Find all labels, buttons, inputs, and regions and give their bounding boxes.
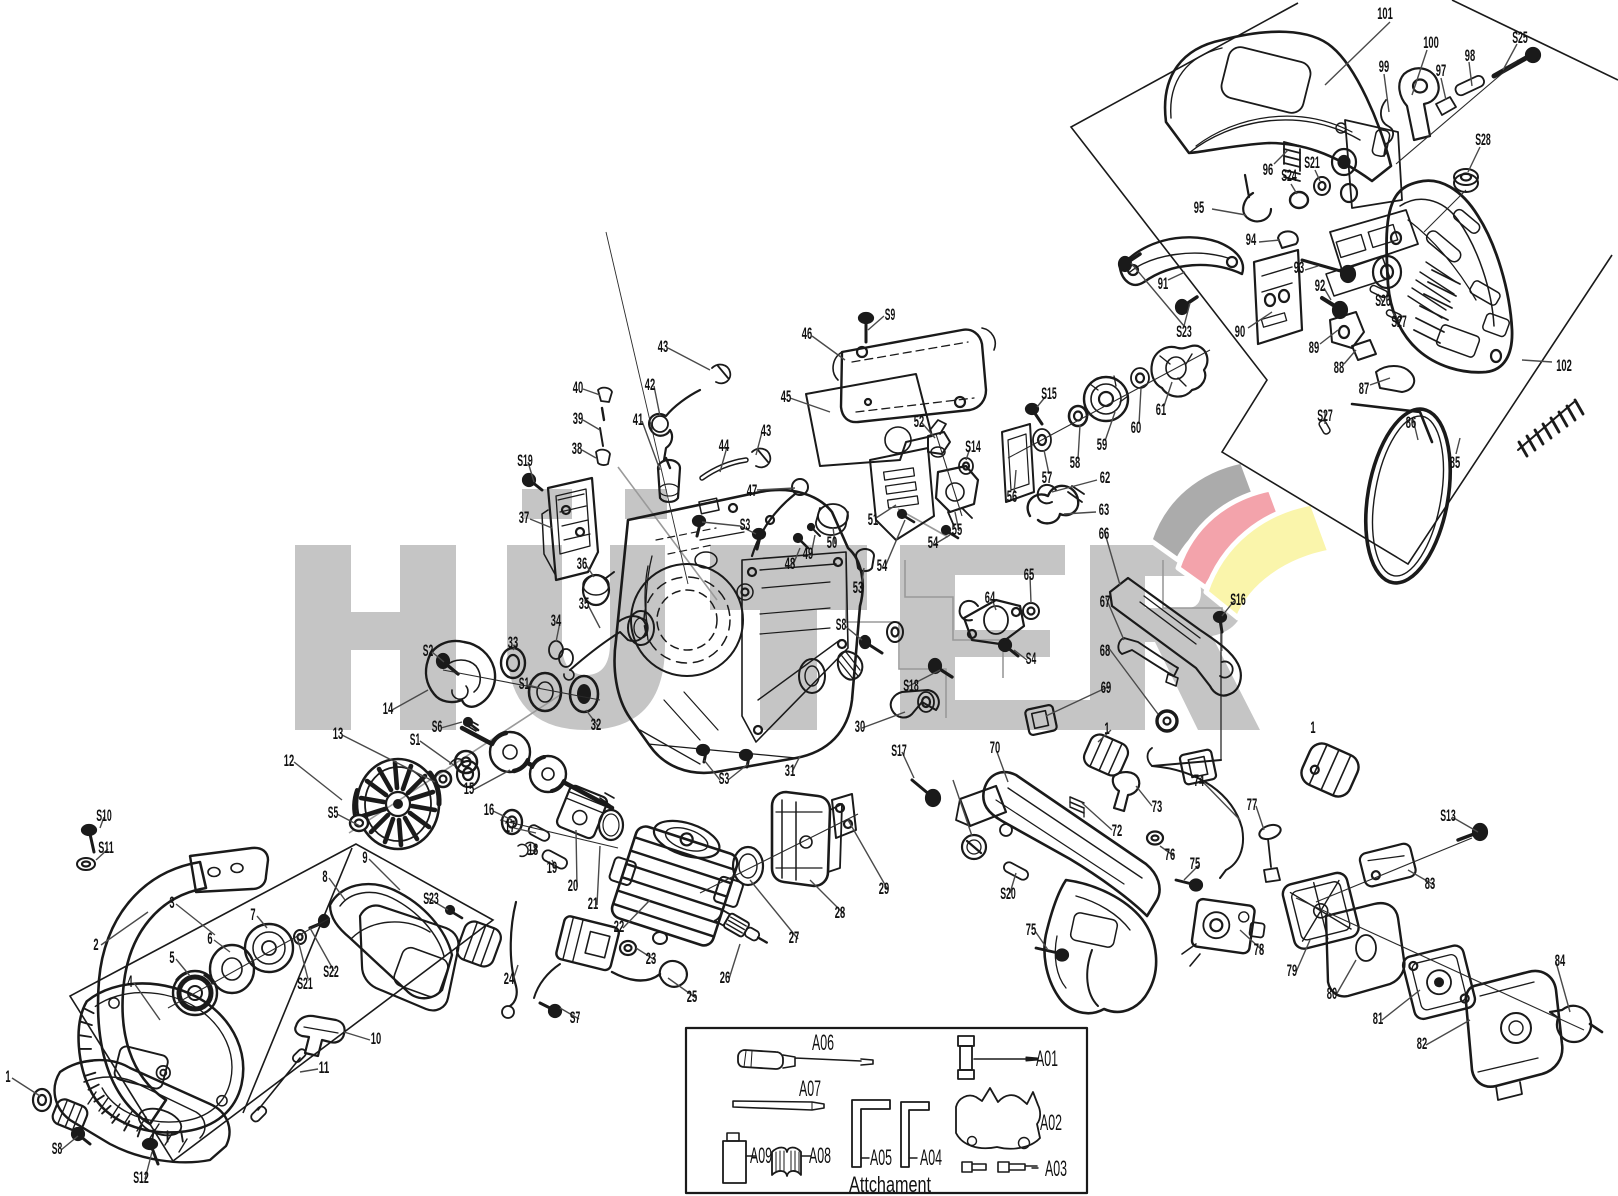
svg-text:S25: S25 (1512, 28, 1528, 47)
svg-text:S11: S11 (98, 838, 114, 857)
svg-text:A02: A02 (1040, 1110, 1062, 1135)
svg-text:89: 89 (1309, 338, 1319, 357)
svg-text:3: 3 (169, 893, 174, 912)
svg-text:53: 53 (853, 578, 863, 597)
svg-text:4: 4 (127, 972, 132, 991)
svg-text:68: 68 (1100, 641, 1110, 660)
svg-text:1: 1 (5, 1067, 10, 1086)
svg-text:91: 91 (1158, 274, 1168, 293)
svg-text:32: 32 (591, 715, 601, 734)
svg-text:67: 67 (1100, 592, 1110, 611)
svg-text:58: 58 (1070, 453, 1080, 472)
svg-text:60: 60 (1131, 418, 1141, 437)
svg-text:S6: S6 (432, 717, 442, 736)
svg-text:54: 54 (928, 533, 939, 552)
svg-text:93: 93 (1294, 258, 1304, 277)
svg-text:82: 82 (1417, 1034, 1427, 1053)
svg-text:101: 101 (1377, 4, 1393, 23)
svg-text:61: 61 (1156, 400, 1166, 419)
svg-text:24: 24 (504, 969, 515, 988)
svg-text:55: 55 (952, 520, 962, 539)
svg-text:95: 95 (1194, 198, 1204, 217)
svg-text:21: 21 (588, 894, 598, 913)
svg-text:S26: S26 (1375, 291, 1391, 310)
svg-text:27: 27 (789, 928, 799, 947)
svg-text:S23: S23 (423, 889, 439, 908)
svg-text:1: 1 (1310, 718, 1315, 737)
svg-text:36: 36 (577, 554, 587, 573)
svg-text:88: 88 (1334, 358, 1344, 377)
svg-text:23: 23 (646, 949, 656, 968)
svg-text:66: 66 (1099, 524, 1109, 543)
svg-text:83: 83 (1425, 874, 1435, 893)
svg-text:43: 43 (761, 421, 771, 440)
svg-text:20: 20 (568, 876, 578, 895)
svg-text:Attchament: Attchament (849, 1172, 931, 1196)
svg-text:8: 8 (322, 867, 327, 886)
svg-text:45: 45 (781, 387, 791, 406)
svg-text:S16: S16 (1230, 590, 1246, 609)
svg-text:85: 85 (1450, 453, 1460, 472)
svg-text:80: 80 (1327, 984, 1337, 1003)
svg-text:S1: S1 (410, 730, 420, 749)
svg-text:54: 54 (877, 556, 888, 575)
svg-text:31: 31 (785, 761, 795, 780)
svg-text:S22: S22 (323, 962, 339, 981)
svg-text:A04: A04 (920, 1145, 942, 1170)
svg-text:2: 2 (93, 935, 98, 954)
svg-text:35: 35 (579, 594, 589, 613)
svg-text:39: 39 (573, 409, 583, 428)
svg-text:S8: S8 (52, 1139, 62, 1158)
svg-text:97: 97 (1436, 61, 1446, 80)
svg-text:72: 72 (1112, 821, 1122, 840)
svg-text:22: 22 (614, 917, 624, 936)
svg-text:A06: A06 (812, 1030, 834, 1055)
svg-text:70: 70 (990, 738, 1000, 757)
svg-text:S13: S13 (1440, 806, 1456, 825)
svg-text:26: 26 (720, 968, 730, 987)
svg-text:29: 29 (879, 879, 889, 898)
svg-text:S20: S20 (1000, 884, 1016, 903)
svg-text:28: 28 (835, 903, 845, 922)
svg-text:52: 52 (914, 412, 924, 431)
svg-text:76: 76 (1165, 845, 1175, 864)
svg-text:S21: S21 (1304, 153, 1320, 172)
svg-text:S3: S3 (740, 515, 750, 534)
svg-text:50: 50 (827, 533, 837, 552)
svg-text:17: 17 (505, 817, 515, 836)
svg-text:19: 19 (547, 858, 557, 877)
svg-text:S7: S7 (570, 1008, 580, 1027)
svg-text:11: 11 (319, 1058, 329, 1077)
svg-text:9: 9 (362, 848, 367, 867)
svg-text:S9: S9 (885, 305, 895, 324)
svg-text:S18: S18 (903, 676, 919, 695)
svg-text:S21: S21 (297, 974, 313, 993)
svg-text:A09: A09 (750, 1143, 772, 1168)
svg-text:43: 43 (658, 337, 668, 356)
svg-text:15: 15 (464, 779, 474, 798)
svg-text:56: 56 (1007, 487, 1017, 506)
svg-text:33: 33 (508, 633, 518, 652)
svg-text:S27: S27 (1317, 406, 1333, 425)
svg-text:69: 69 (1101, 678, 1111, 697)
svg-text:A03: A03 (1045, 1156, 1067, 1181)
svg-text:S5: S5 (328, 803, 338, 822)
svg-text:S14: S14 (965, 437, 981, 456)
svg-text:10: 10 (371, 1029, 381, 1048)
svg-text:S8: S8 (836, 615, 846, 634)
svg-text:S12: S12 (133, 1168, 149, 1187)
svg-text:94: 94 (1246, 230, 1257, 249)
svg-text:57: 57 (1042, 468, 1052, 487)
svg-text:84: 84 (1555, 951, 1566, 970)
svg-text:S1: S1 (519, 674, 529, 693)
svg-text:90: 90 (1235, 322, 1245, 341)
svg-text:75: 75 (1190, 854, 1200, 873)
svg-text:13: 13 (333, 724, 343, 743)
svg-text:47: 47 (747, 481, 757, 500)
svg-text:51: 51 (868, 510, 878, 529)
svg-text:77: 77 (1247, 795, 1257, 814)
svg-text:73: 73 (1152, 797, 1162, 816)
svg-text:18: 18 (528, 840, 538, 859)
svg-text:65: 65 (1024, 565, 1034, 584)
svg-text:S2: S2 (423, 641, 433, 660)
svg-text:86: 86 (1406, 413, 1416, 432)
svg-text:A01: A01 (1036, 1046, 1058, 1071)
svg-text:S23: S23 (1176, 322, 1192, 341)
svg-text:A07: A07 (799, 1076, 821, 1101)
svg-text:14: 14 (383, 699, 394, 718)
svg-text:63: 63 (1099, 500, 1109, 519)
svg-text:48: 48 (785, 554, 795, 573)
svg-text:98: 98 (1465, 46, 1475, 65)
svg-text:S4: S4 (1026, 649, 1037, 668)
svg-text:S27: S27 (1391, 312, 1407, 331)
svg-text:16: 16 (484, 800, 494, 819)
svg-text:5: 5 (169, 948, 174, 967)
svg-text:78: 78 (1254, 940, 1264, 959)
svg-text:59: 59 (1097, 435, 1107, 454)
svg-text:49: 49 (803, 544, 813, 563)
svg-text:6: 6 (207, 929, 212, 948)
svg-text:A08: A08 (809, 1143, 831, 1168)
svg-text:25: 25 (687, 987, 697, 1006)
svg-text:12: 12 (284, 751, 294, 770)
svg-text:87: 87 (1359, 379, 1369, 398)
svg-text:75: 75 (1026, 920, 1036, 939)
svg-text:100: 100 (1423, 33, 1439, 52)
svg-text:S15: S15 (1041, 384, 1057, 403)
svg-text:102: 102 (1556, 356, 1572, 375)
svg-text:1: 1 (1104, 719, 1109, 738)
svg-text:40: 40 (573, 378, 583, 397)
svg-text:S19: S19 (517, 451, 533, 470)
svg-text:S28: S28 (1475, 130, 1491, 149)
svg-text:7: 7 (250, 905, 255, 924)
svg-text:79: 79 (1287, 961, 1297, 980)
svg-text:62: 62 (1100, 468, 1110, 487)
svg-text:S17: S17 (891, 741, 907, 760)
svg-text:99: 99 (1379, 57, 1389, 76)
svg-text:38: 38 (572, 439, 582, 458)
svg-text:A05: A05 (870, 1145, 892, 1170)
svg-text:81: 81 (1373, 1009, 1383, 1028)
svg-text:44: 44 (719, 436, 730, 455)
svg-text:41: 41 (633, 410, 643, 429)
svg-text:64: 64 (985, 588, 996, 607)
svg-text:30: 30 (855, 717, 865, 736)
svg-text:S24: S24 (1281, 166, 1297, 185)
svg-text:S10: S10 (96, 806, 112, 825)
svg-text:92: 92 (1315, 276, 1325, 295)
svg-text:S3: S3 (719, 769, 729, 788)
svg-text:42: 42 (645, 375, 655, 394)
svg-text:34: 34 (551, 611, 562, 630)
svg-text:37: 37 (519, 508, 529, 527)
svg-text:96: 96 (1263, 160, 1273, 179)
svg-text:46: 46 (802, 324, 812, 343)
svg-text:74: 74 (1194, 771, 1205, 790)
